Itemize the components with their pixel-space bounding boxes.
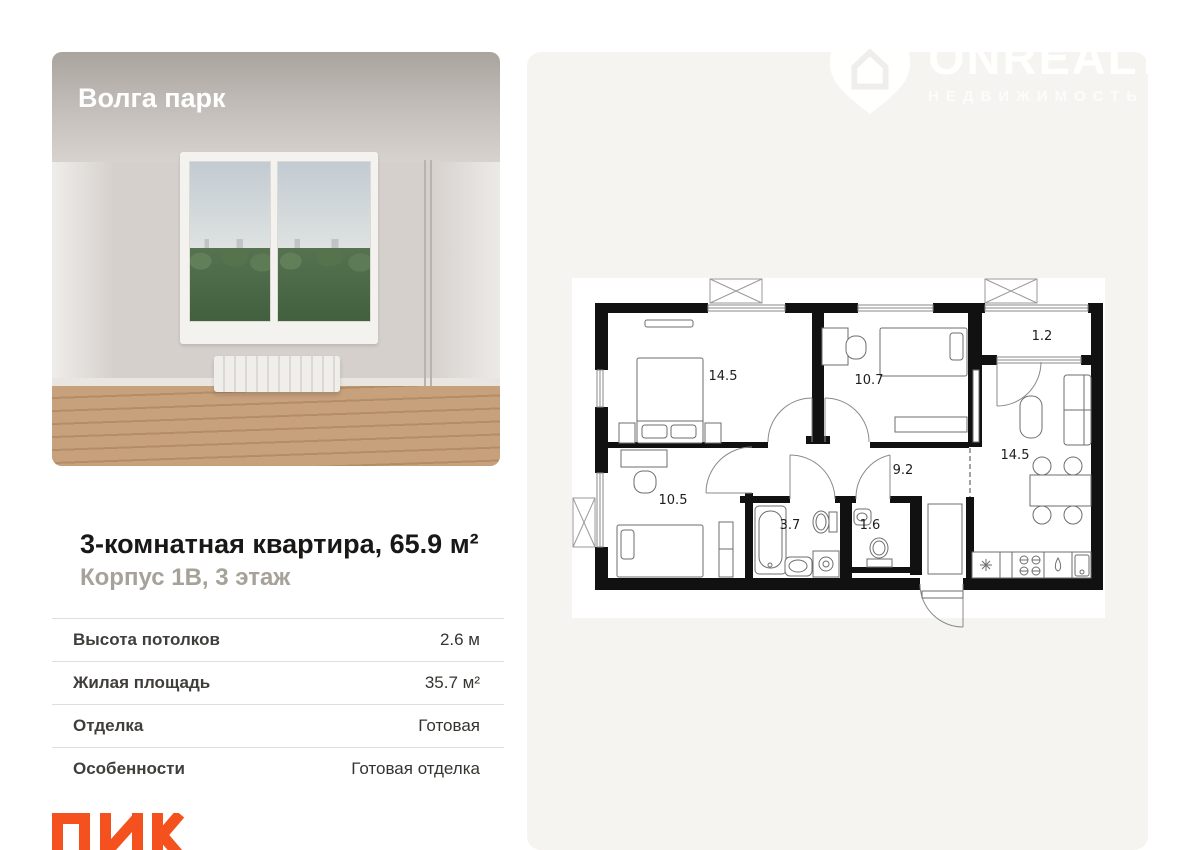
listing-title: 3-комнатная квартира, 65.9 м² xyxy=(80,529,479,560)
spec-row: Отделка Готовая xyxy=(52,705,504,748)
room-area-label: 1.2 xyxy=(1032,329,1053,344)
photo-wood-floor xyxy=(52,386,500,466)
room-area-label: 10.5 xyxy=(659,493,688,508)
washing-machine-icon xyxy=(813,551,839,577)
radiator xyxy=(214,356,340,392)
spec-label: Высота потолков xyxy=(73,630,220,650)
room-area-label: 14.5 xyxy=(709,369,738,384)
spec-row: Особенности Готовая отделка xyxy=(52,748,504,790)
spec-label: Жилая площадь xyxy=(73,673,210,693)
spec-value: 35.7 м² xyxy=(425,673,480,693)
pik-logo-glyphs xyxy=(52,813,184,850)
apartment-photo: Волга парк xyxy=(52,52,500,466)
specs-table: Высота потолков 2.6 м Жилая площадь 35.7… xyxy=(52,618,504,790)
window-sill xyxy=(184,322,374,330)
spec-value: 2.6 м xyxy=(440,630,480,650)
pik-logo xyxy=(52,813,192,850)
floorplan-image: 14.5 10.7 1.2 14.5 9.2 10.5 3.7 1.6 xyxy=(572,278,1105,630)
spec-row: Жилая площадь 35.7 м² xyxy=(52,662,504,705)
room-area-label: 3.7 xyxy=(780,518,801,533)
spec-label: Особенности xyxy=(73,759,185,779)
window-pane-right xyxy=(277,161,371,322)
room-area-label: 1.6 xyxy=(860,518,881,533)
trees xyxy=(277,248,371,321)
trees xyxy=(189,248,271,321)
room-area-label: 10.7 xyxy=(855,373,884,388)
photo-window xyxy=(180,152,378,344)
window-pane-left xyxy=(189,161,271,322)
floorplan-panel: 14.5 10.7 1.2 14.5 9.2 10.5 3.7 1.6 xyxy=(527,52,1148,850)
wall-pipes xyxy=(424,160,432,386)
spec-row: Высота потолков 2.6 м xyxy=(52,619,504,662)
spec-label: Отделка xyxy=(73,716,143,736)
listing-subtitle: Корпус 1В, 3 этаж xyxy=(80,564,290,592)
room-area-label: 14.5 xyxy=(1001,448,1030,463)
spec-value: Готовая xyxy=(418,716,480,736)
bathtub-icon xyxy=(755,506,786,574)
toilet-icon-bathroom xyxy=(813,511,837,533)
sink-icon xyxy=(1075,555,1089,576)
project-label: Волга парк xyxy=(78,83,226,114)
room-area-label: 9.2 xyxy=(893,463,914,478)
spec-value: Готовая отделка xyxy=(351,759,480,779)
